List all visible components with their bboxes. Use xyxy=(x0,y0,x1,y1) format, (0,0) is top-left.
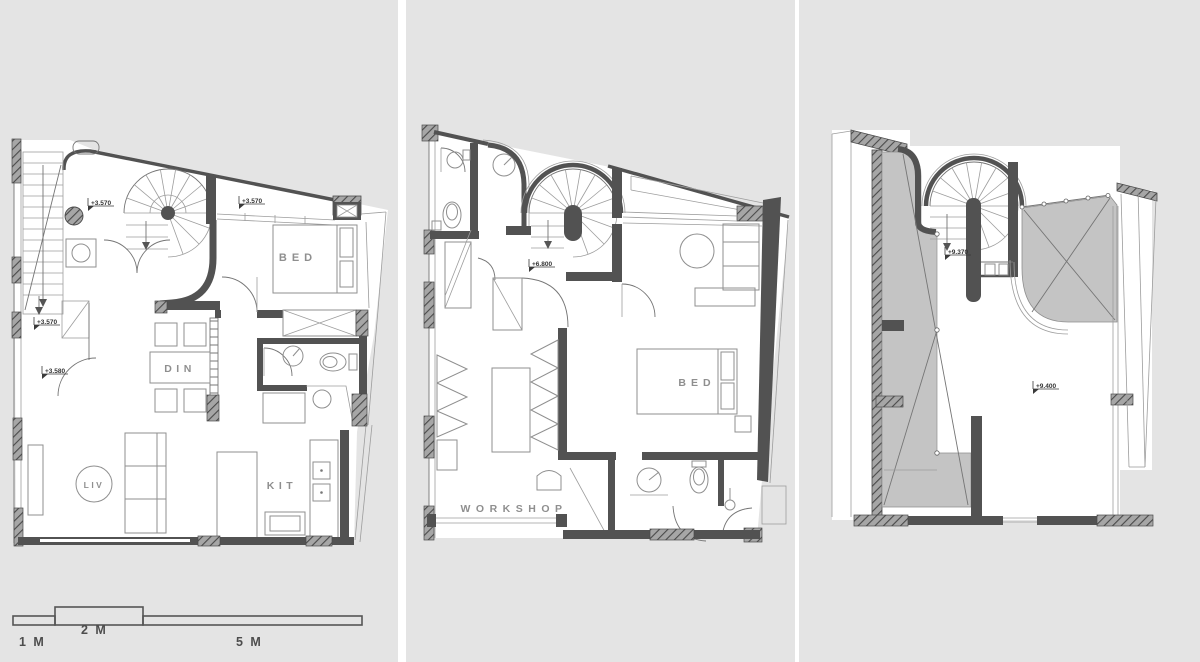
floor-plan-level-2: BED WORKSHOP xyxy=(422,125,789,542)
elevation-marker-text: +6.800 xyxy=(532,261,552,268)
floor-plans-sheet: BED DIN xyxy=(0,0,1200,662)
room-label-liv: LIV xyxy=(84,480,105,490)
room-label-bed: BED xyxy=(279,252,317,264)
elevation-marker-text: +9.400 xyxy=(1036,383,1056,390)
room-label-bed: BED xyxy=(678,377,715,389)
room-label-din: DIN xyxy=(164,363,196,375)
plans-drawing: BED DIN xyxy=(0,0,1200,662)
floor-plan-level-1: BED DIN xyxy=(12,139,388,546)
scale-label-5m: 5 M xyxy=(236,635,263,649)
elevation-marker-text: +3.570 xyxy=(242,198,262,205)
panel-separator xyxy=(795,0,799,662)
scale-label-2m: 2 M xyxy=(81,623,108,637)
panel-separator xyxy=(398,0,406,662)
elevation-marker-text: +3.570 xyxy=(37,319,57,326)
elevation-marker-text: +3.580 xyxy=(45,368,65,375)
column xyxy=(65,207,83,225)
room-label-workshop: WORKSHOP xyxy=(461,503,568,515)
elevation-marker-text: +3.570 xyxy=(91,200,111,207)
scale-label-1m: 1 M xyxy=(19,635,46,649)
elevation-marker-text: +9.370 xyxy=(948,249,968,256)
scale-bar: 1 M 2 M 5 M xyxy=(13,607,362,649)
floor-plan-roof: +9.370 +9.400 xyxy=(832,130,1157,526)
room-label-kit: KIT xyxy=(267,480,297,492)
stair-guard xyxy=(210,318,218,396)
